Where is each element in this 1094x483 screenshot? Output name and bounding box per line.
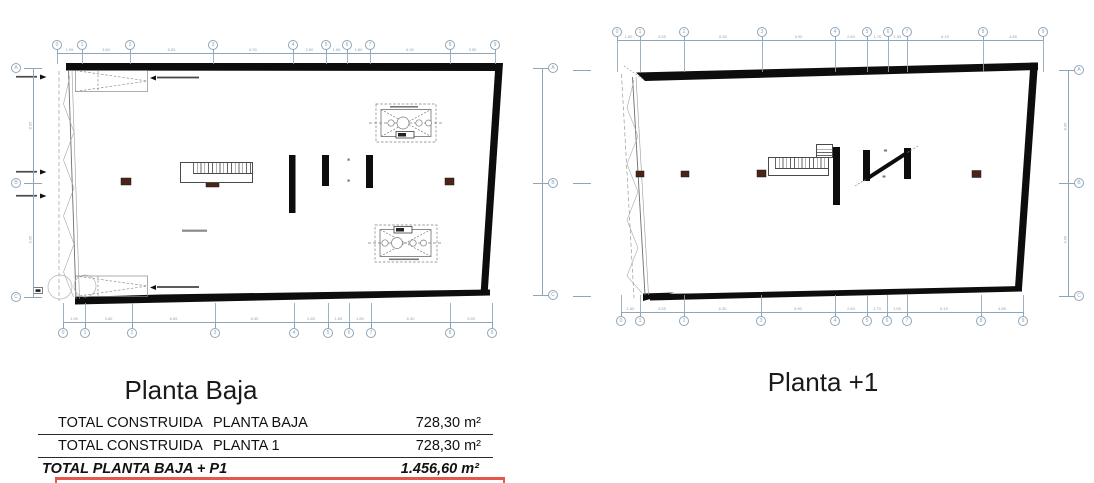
drawing-sheet: 01.9513.8026.5536.3042.6051.6561.8076.30… bbox=[0, 0, 1094, 483]
grid-leader bbox=[1043, 40, 1044, 72]
grid-bubble: 1 bbox=[635, 316, 645, 326]
dimension-label: 6.30 bbox=[684, 34, 762, 39]
dimension-label: 6.30 bbox=[213, 47, 293, 52]
grid-bubble: 0 bbox=[616, 316, 626, 326]
dimension-overlay: 01.9513.8026.5536.3042.6051.6561.8076.30… bbox=[0, 0, 1094, 483]
dimension-label: 1.70 bbox=[867, 306, 887, 311]
dimension-label: 9.05 bbox=[28, 226, 33, 254]
grid-tick bbox=[24, 183, 42, 184]
grid-tick bbox=[573, 70, 591, 71]
grid-bubble: 5 bbox=[862, 316, 872, 326]
grid-bubble: C bbox=[1074, 291, 1084, 301]
grid-leader bbox=[370, 53, 371, 64]
grid-leader bbox=[347, 53, 348, 64]
left-plan-title: Planta Baja bbox=[81, 375, 301, 406]
dimension-label: 3.80 bbox=[85, 316, 132, 321]
dimension-label: 5.90 bbox=[761, 306, 835, 311]
row-value: 728,30 m² bbox=[416, 438, 481, 454]
dimension-label: 1.80 bbox=[621, 306, 640, 311]
grid-leader bbox=[907, 40, 908, 72]
grid-leader bbox=[213, 53, 214, 64]
dimension-label: 3.55 bbox=[450, 47, 495, 52]
grid-bubble: 0 bbox=[58, 328, 68, 338]
grid-bubble: 6 bbox=[882, 316, 892, 326]
dimension-label: 6.15 bbox=[907, 306, 981, 311]
right-plan-title: Planta +1 bbox=[713, 367, 933, 398]
total-value: 1.456,60 m² bbox=[401, 461, 479, 477]
grid-bubble: 9 bbox=[1038, 27, 1048, 37]
grid-tick bbox=[573, 183, 591, 184]
dimension-label: 3.80 bbox=[82, 47, 130, 52]
grid-bubble: 1 bbox=[80, 328, 90, 338]
row-label: TOTAL CONSTRUIDA bbox=[58, 415, 203, 431]
grid-bubble: B bbox=[1074, 178, 1084, 188]
grid-bubble: 5 bbox=[323, 328, 333, 338]
grid-leader bbox=[130, 53, 131, 64]
grid-bubble: 4 bbox=[289, 328, 299, 338]
grid-bubble: A bbox=[11, 63, 21, 73]
dimension-label: 6.30 bbox=[371, 316, 450, 321]
row-sublabel: PLANTA BAJA bbox=[213, 415, 308, 431]
red-rule-cap bbox=[503, 477, 505, 483]
dim-line bbox=[542, 68, 543, 295]
grid-leader bbox=[617, 40, 618, 72]
dimension-label: 1.55 bbox=[887, 306, 907, 311]
grid-bubble: A bbox=[548, 63, 558, 73]
grid-bubble: 9 bbox=[490, 40, 500, 50]
red-rule-cap bbox=[55, 477, 57, 483]
dimension-label: 3.55 bbox=[640, 306, 684, 311]
total-label: TOTAL PLANTA BAJA + P1 bbox=[42, 461, 227, 477]
grid-bubble: 3 bbox=[756, 316, 766, 326]
grid-bubble: 4 bbox=[830, 316, 840, 326]
dim-line bbox=[57, 53, 495, 54]
grid-bubble: 3 bbox=[210, 328, 220, 338]
table-row: TOTAL CONSTRUIDA PLANTA BAJA 728,30 m² bbox=[38, 412, 493, 435]
grid-bubble: 8 bbox=[976, 316, 986, 326]
grid-leader bbox=[82, 53, 83, 64]
grid-bubble: 2 bbox=[127, 328, 137, 338]
dimension-label: 5.90 bbox=[762, 34, 835, 39]
dim-line bbox=[617, 40, 1043, 41]
grid-leader bbox=[888, 40, 889, 72]
grid-bubble: 7 bbox=[366, 328, 376, 338]
grid-bubble: A bbox=[1074, 65, 1084, 75]
grid-leader bbox=[450, 53, 451, 64]
dimension-label: 6.30 bbox=[215, 316, 294, 321]
dimension-label: 8.95 bbox=[1063, 112, 1068, 140]
grid-bubble: C bbox=[11, 292, 21, 302]
dimension-label: 1.80 bbox=[349, 316, 371, 321]
dimension-label: 6.55 bbox=[132, 316, 215, 321]
grid-leader bbox=[326, 53, 327, 64]
grid-tick bbox=[24, 297, 42, 298]
grid-leader bbox=[762, 40, 763, 72]
row-value: 728,30 m² bbox=[416, 415, 481, 431]
dim-line bbox=[63, 322, 492, 323]
dimension-label: 3.55 bbox=[640, 34, 684, 39]
grid-leader bbox=[835, 40, 836, 72]
dim-line bbox=[621, 312, 1023, 313]
grid-bubble: B bbox=[11, 178, 21, 188]
grid-leader bbox=[293, 53, 294, 64]
dimension-label: 3.55 bbox=[450, 316, 492, 321]
dimension-label: 1.95 bbox=[63, 316, 85, 321]
area-table: TOTAL CONSTRUIDA PLANTA BAJA 728,30 m² T… bbox=[38, 412, 493, 480]
grid-bubble: 9 bbox=[487, 328, 497, 338]
row-label: TOTAL CONSTRUIDA bbox=[58, 438, 203, 454]
table-row: TOTAL CONSTRUIDA PLANTA 1 728,30 m² bbox=[38, 435, 493, 458]
grid-leader bbox=[640, 40, 641, 72]
grid-tick bbox=[24, 68, 42, 69]
grid-leader bbox=[495, 53, 496, 64]
grid-bubble: 9 bbox=[1018, 316, 1028, 326]
dimension-label: 6.30 bbox=[370, 47, 450, 52]
dimension-label: 4.85 bbox=[981, 306, 1023, 311]
table-red-rule bbox=[55, 477, 505, 480]
grid-bubble: 7 bbox=[902, 316, 912, 326]
dimension-label: 4.85 bbox=[983, 34, 1043, 39]
grid-leader bbox=[983, 40, 984, 72]
dimension-label: 6.30 bbox=[684, 306, 761, 311]
dimension-label: 6.15 bbox=[907, 34, 983, 39]
grid-bubble: 6 bbox=[344, 328, 354, 338]
grid-bubble: B bbox=[548, 178, 558, 188]
grid-leader bbox=[1023, 295, 1024, 312]
grid-bubble: 2 bbox=[679, 316, 689, 326]
row-sublabel: PLANTA 1 bbox=[213, 438, 280, 454]
grid-bubble: C bbox=[548, 290, 558, 300]
grid-leader bbox=[57, 53, 58, 64]
grid-leader bbox=[867, 40, 868, 72]
dimension-label: 9.05 bbox=[1063, 225, 1068, 253]
dimension-label: 6.55 bbox=[130, 47, 213, 52]
dimension-label: 2.60 bbox=[835, 306, 867, 311]
grid-bubble: 8 bbox=[445, 328, 455, 338]
grid-leader bbox=[684, 40, 685, 72]
grid-tick bbox=[573, 296, 591, 297]
grid-leader bbox=[492, 303, 493, 322]
dimension-label: 1.65 bbox=[328, 316, 349, 321]
dimension-label: 2.60 bbox=[294, 316, 328, 321]
dimension-label: 8.95 bbox=[28, 111, 33, 139]
